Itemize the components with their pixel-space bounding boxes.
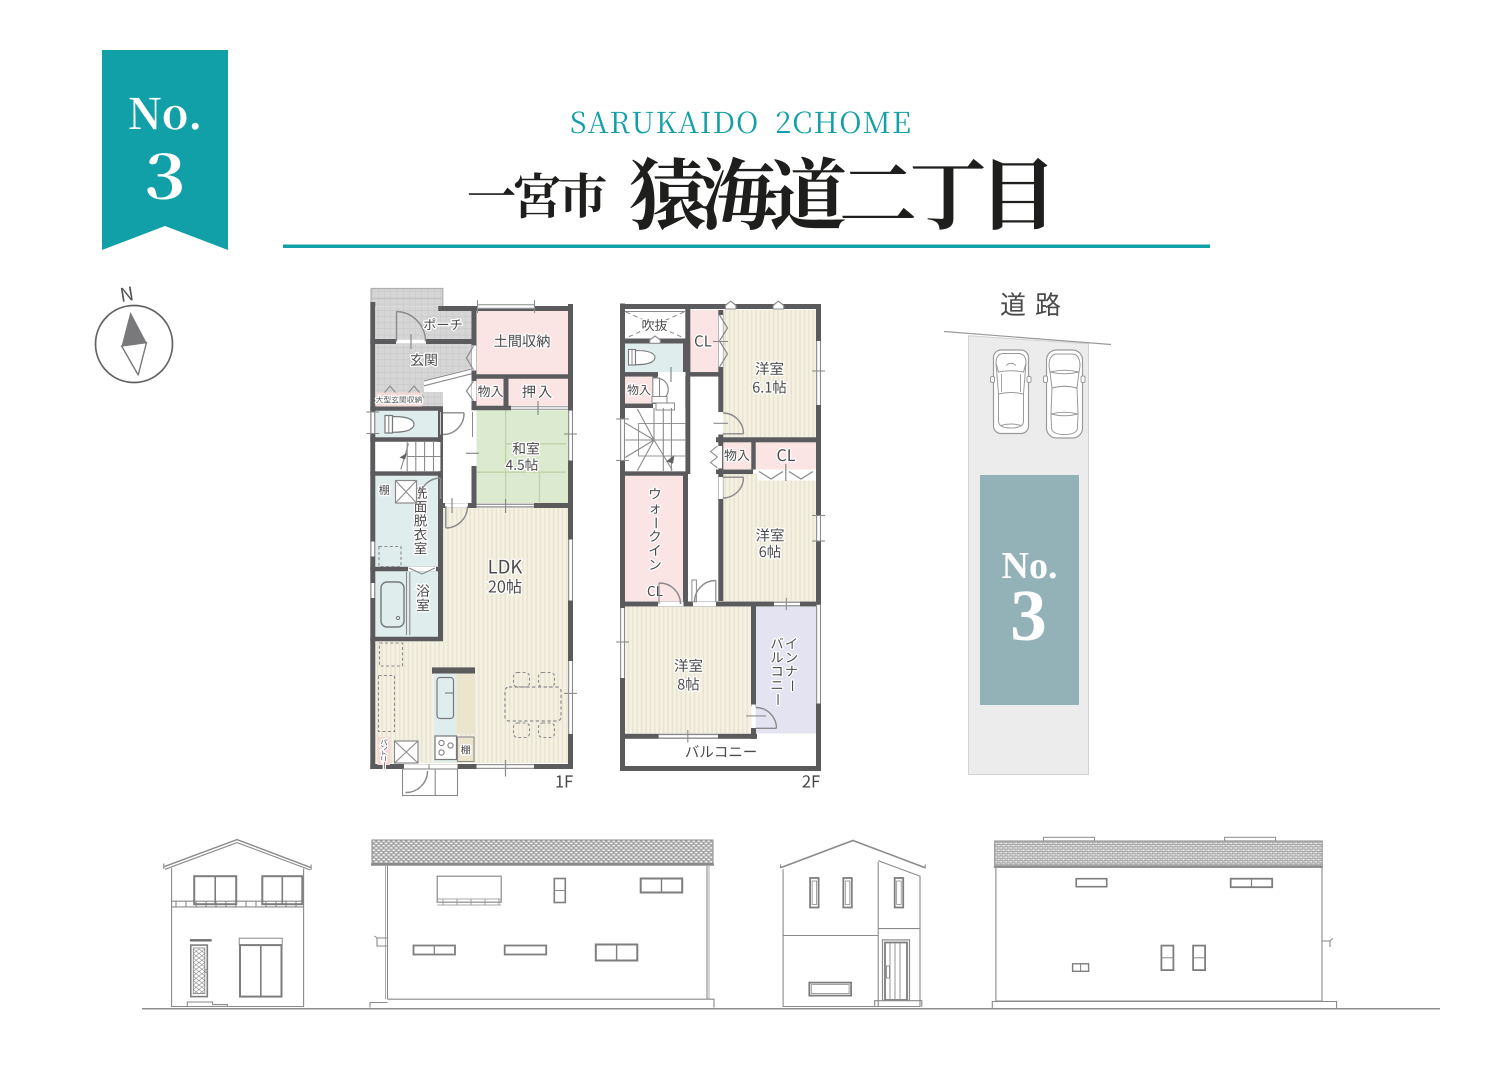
svg-text:3: 3 [1010,575,1047,656]
